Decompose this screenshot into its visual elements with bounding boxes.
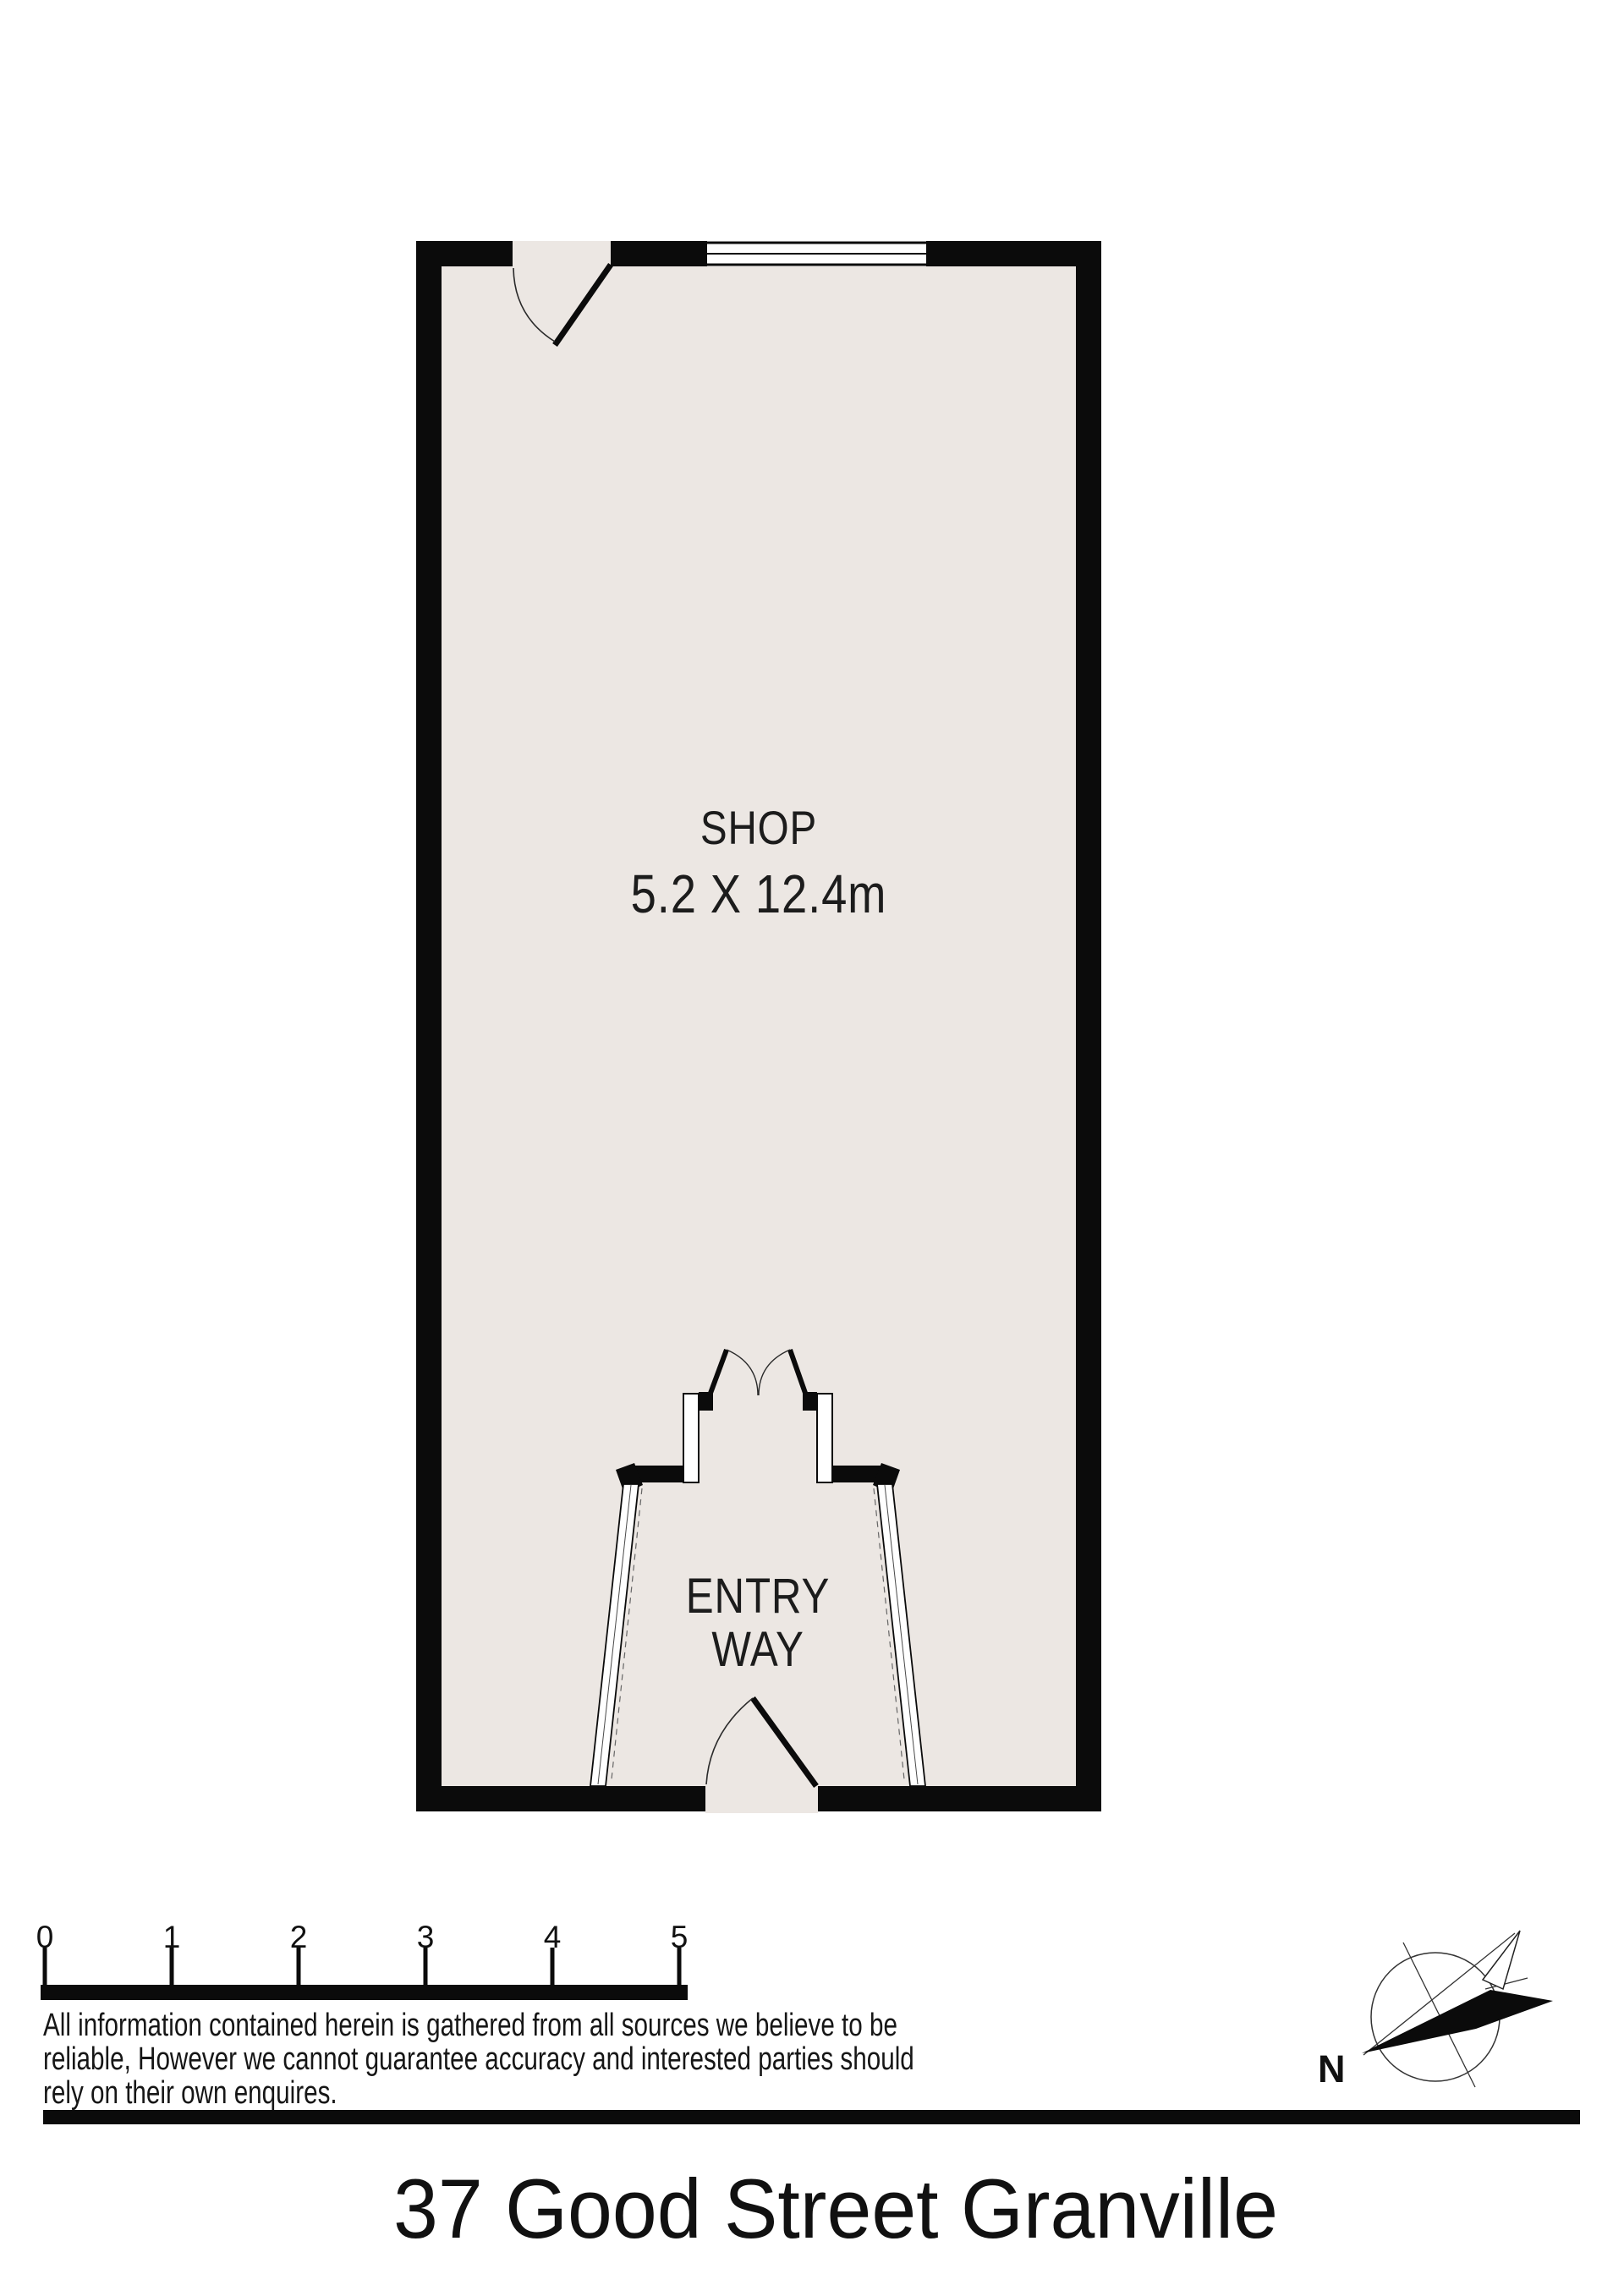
disclaimer-line-3: rely on their own enquires.	[43, 2077, 337, 2109]
scale-label-2: 2	[290, 1921, 308, 1953]
disclaimer-line-2: reliable, However we cannot guarantee ac…	[43, 2043, 914, 2075]
entry-label-line2: WAY	[711, 1625, 804, 1674]
entry-jamb-left	[683, 1394, 699, 1482]
page-title: 37 Good Street Granville	[393, 2167, 1278, 2250]
wall-right	[1076, 241, 1101, 1811]
scale-label-4: 4	[544, 1921, 562, 1953]
compass-outline-arrowhead	[1483, 1931, 1520, 1989]
scale-label-5: 5	[671, 1921, 689, 1953]
bottom-door-gap	[705, 1784, 818, 1813]
top-door-gap	[513, 241, 611, 268]
top-window	[707, 241, 926, 266]
wall-bottom-seg-right	[818, 1786, 1101, 1811]
wall-top-seg-left	[416, 241, 513, 266]
shop-floor	[442, 266, 1076, 1786]
room-dimensions: 5.2 X 12.4m	[631, 867, 887, 921]
wall-top-seg-right	[926, 241, 1101, 266]
scale-label-1: 1	[163, 1921, 181, 1953]
wall-left	[416, 241, 442, 1811]
separator-bar	[43, 2110, 1580, 2124]
scale-bar-base	[41, 1985, 688, 2000]
floor-plan-page: SHOP 5.2 X 12.4m ENTRY WAY 0 1 2 3 4 5 A…	[0, 0, 1624, 2296]
entry-jamb-right	[817, 1394, 832, 1482]
compass-black-pointer	[1362, 1990, 1553, 2053]
compass-rose	[1362, 1931, 1553, 2087]
north-label: N	[1318, 2050, 1346, 2088]
scale-label-3: 3	[417, 1921, 435, 1953]
disclaimer-line-1: All information contained herein is gath…	[43, 2009, 897, 2041]
wall-bottom-seg-left	[416, 1786, 705, 1811]
wall-top-seg-mid	[611, 241, 707, 266]
entry-label-line1: ENTRY	[686, 1572, 830, 1621]
scale-label-0: 0	[36, 1921, 54, 1953]
scale-bar-graphic	[41, 1948, 688, 2000]
room-label: SHOP	[700, 804, 817, 852]
floor-plan-canvas	[0, 0, 1624, 2296]
